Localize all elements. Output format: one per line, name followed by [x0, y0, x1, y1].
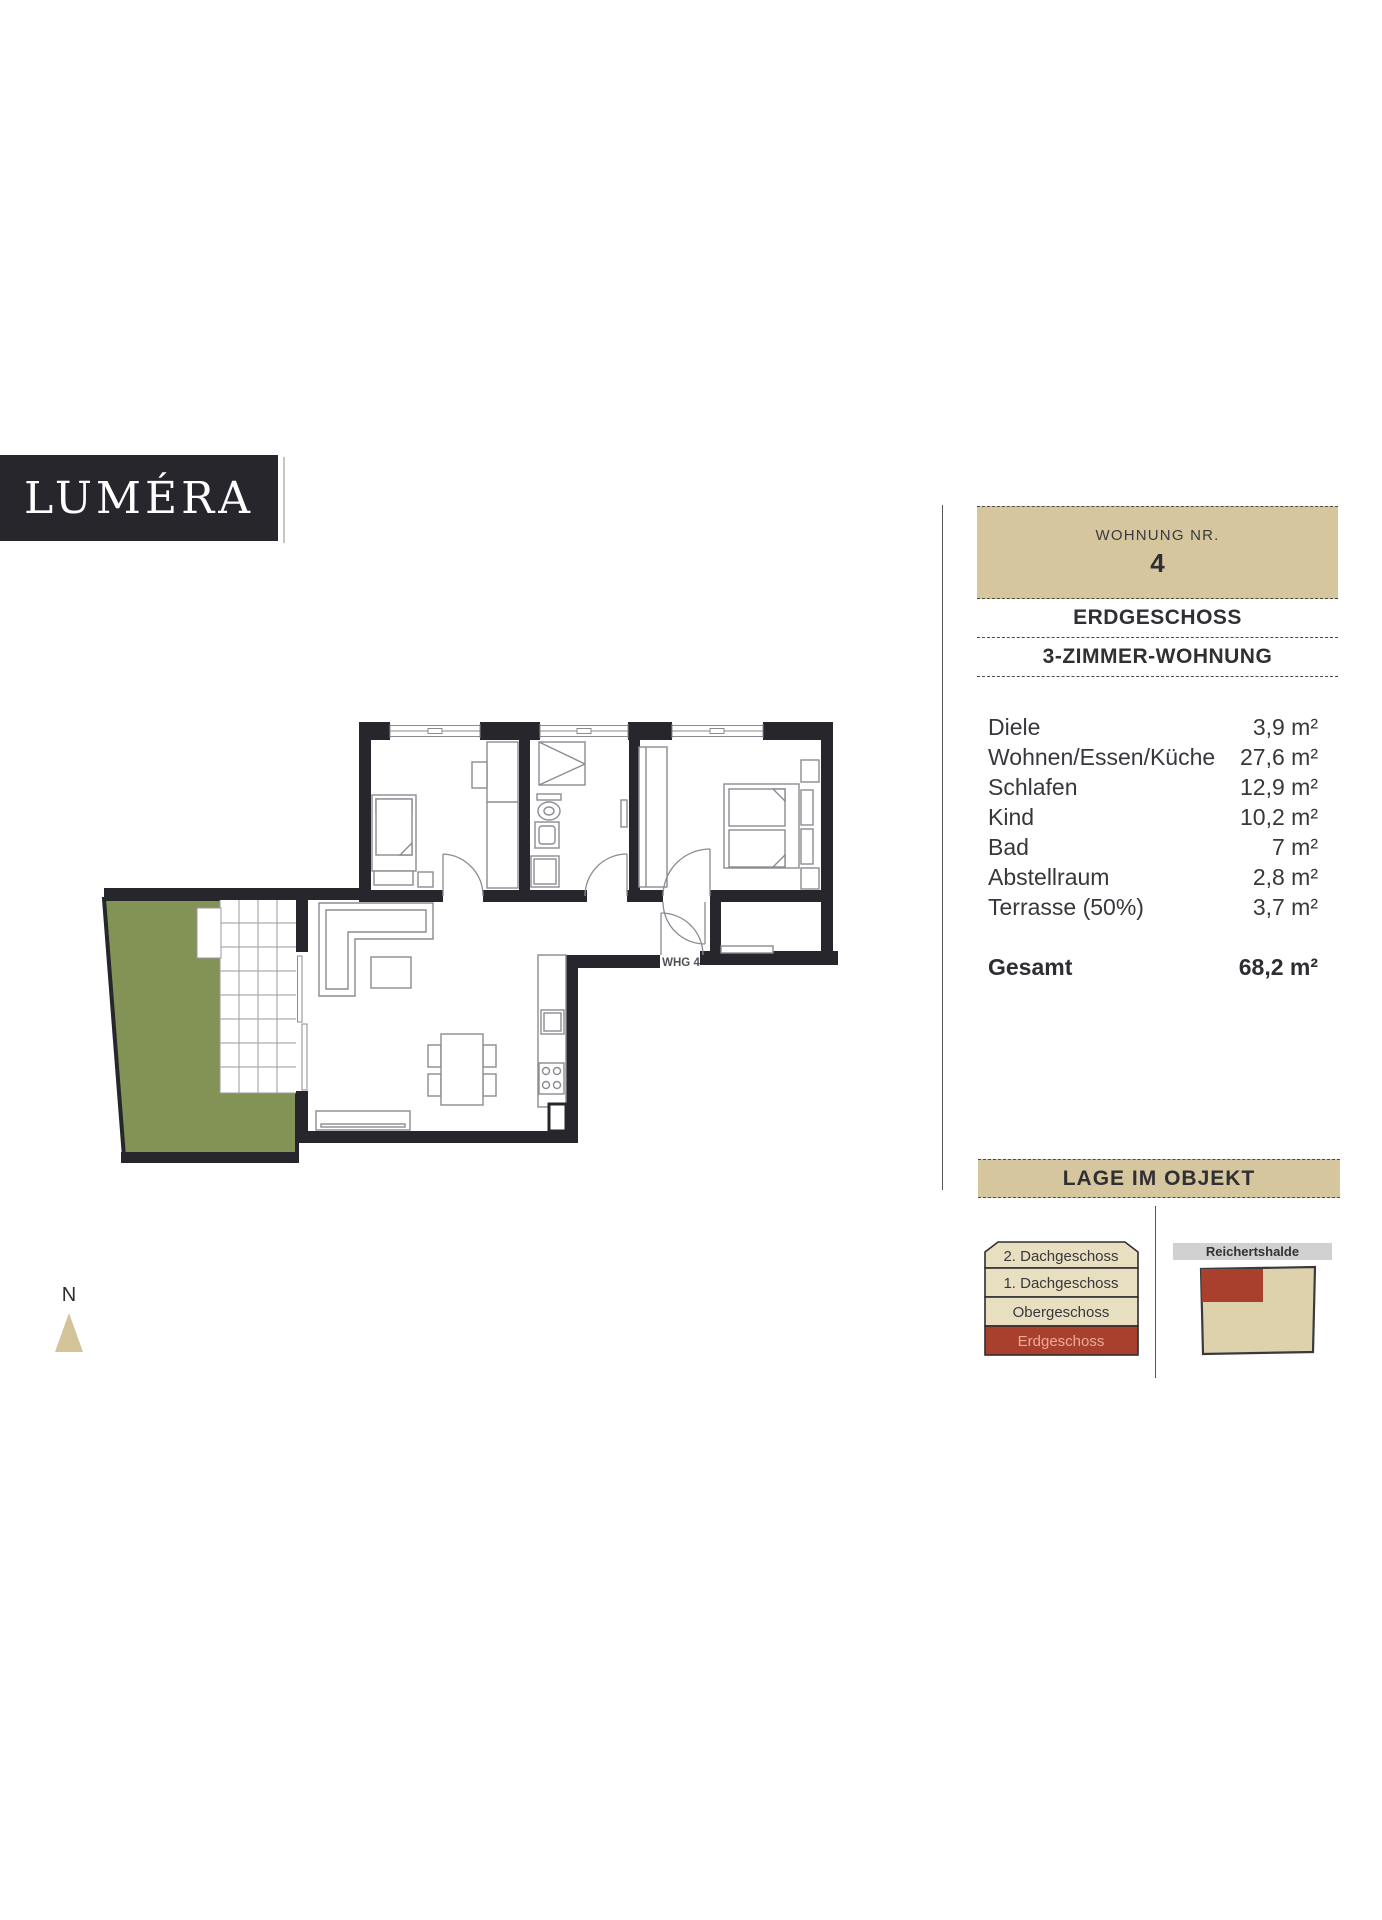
garden-edge-wall — [121, 1152, 299, 1163]
room-area: 2,8 m² — [1253, 862, 1318, 892]
street-label: Reichertshalde — [1173, 1243, 1332, 1260]
door-bad — [585, 854, 627, 896]
room-row: Kind 10,2 m² — [988, 802, 1318, 832]
terrace-sliding-door — [296, 952, 308, 1091]
unit-number: 4 — [1150, 548, 1164, 579]
wall-kind-bad — [519, 740, 530, 902]
garden-area — [104, 899, 299, 1163]
bath-toilet — [537, 794, 561, 820]
north-arrow-icon — [55, 1313, 83, 1352]
floor-title: ERDGESCHOSS — [977, 599, 1338, 638]
terrace-bench — [197, 908, 221, 958]
room-row: Terrasse (50%) 3,7 m² — [988, 892, 1318, 922]
room-area: 10,2 m² — [1240, 802, 1318, 832]
room-list: Diele 3,9 m² Wohnen/Essen/Küche 27,6 m² … — [988, 712, 1318, 982]
wall-kitchen — [566, 955, 578, 1143]
bath-washer — [531, 856, 559, 887]
entrance-doormat — [721, 946, 773, 953]
door-kind — [443, 854, 483, 896]
wall-over-garden — [104, 888, 359, 900]
window-kind — [390, 722, 480, 740]
room-row: Abstellraum 2,8 m² — [988, 862, 1318, 892]
nightstand — [801, 868, 819, 889]
site-unit-highlight — [1201, 1269, 1263, 1302]
room-label: Kind — [988, 802, 1034, 832]
wall-notch — [549, 1104, 566, 1131]
schlafen-radiator — [621, 800, 627, 827]
room-label: Bad — [988, 832, 1029, 862]
coffee-table — [371, 957, 411, 988]
bath-sink — [535, 822, 559, 848]
door-schlafen — [663, 849, 710, 896]
windows — [390, 722, 763, 740]
window-bad — [540, 722, 628, 740]
floor-stack-label: 1. Dachgeschoss — [1003, 1275, 1118, 1292]
bath-shower — [539, 742, 585, 785]
kind-wardrobe — [472, 742, 518, 888]
room-row: Bad 7 m² — [988, 832, 1318, 862]
page: LUMÉRA WOHNUNG NR. 4 ERDGESCHOSS 3-ZIMME… — [0, 0, 1382, 1920]
total-label: Gesamt — [988, 952, 1072, 982]
kind-desk-chair — [472, 762, 487, 788]
column-divider — [942, 505, 943, 1190]
room-row: Diele 3,9 m² — [988, 712, 1318, 742]
schlafen-double-bed — [724, 760, 819, 889]
wall-left-upper — [359, 722, 371, 902]
north-compass: N — [50, 1282, 88, 1356]
unit-header: WOHNUNG NR. 4 — [977, 506, 1338, 599]
floor-stack-label: 2. Dachgeschoss — [1003, 1248, 1118, 1265]
floor-plan: WHG 4 — [90, 700, 860, 1180]
apartment-label: WHG 4 — [662, 957, 700, 969]
room-area: 7 m² — [1272, 832, 1318, 862]
kind-stool — [418, 872, 433, 887]
lage-banner: LAGE IM OBJEKT — [978, 1159, 1340, 1198]
room-label: Schlafen — [988, 772, 1078, 802]
wall-hall-bottom — [571, 955, 660, 968]
room-area: 12,9 m² — [1240, 772, 1318, 802]
room-label: Terrasse (50%) — [988, 892, 1144, 922]
floor-stack-label-highlighted: Erdgeschoss — [1018, 1333, 1105, 1350]
schlafen-wardrobe — [639, 747, 667, 887]
door-entrance — [661, 902, 705, 955]
north-label: N — [62, 1284, 76, 1306]
kind-bed — [372, 795, 416, 885]
brand-logo-text: LUMÉRA — [24, 473, 254, 524]
floor-stack-diagram: 2. Dachgeschoss 1. Dachgeschoss Obergesc… — [983, 1240, 1140, 1357]
room-row: Schlafen 12,9 m² — [988, 772, 1318, 802]
room-label: Diele — [988, 712, 1040, 742]
site-plan — [1197, 1264, 1319, 1358]
unit-label: WOHNUNG NR. — [1095, 527, 1219, 544]
wall-right — [821, 722, 833, 965]
total-area: 68,2 m² — [1239, 952, 1318, 982]
room-label: Wohnen/Essen/Küche — [988, 742, 1215, 772]
total-row: Gesamt 68,2 m² — [988, 952, 1318, 982]
dining-table — [441, 1034, 483, 1105]
kitchen-counter — [538, 955, 566, 1107]
kitchen-stove — [539, 1063, 564, 1094]
logo-rule — [283, 457, 285, 543]
lage-divider — [1155, 1206, 1156, 1378]
brand-logo: LUMÉRA — [0, 455, 278, 541]
room-label: Abstellraum — [988, 862, 1109, 892]
dining-set — [428, 1034, 496, 1105]
room-row: Wohnen/Essen/Küche 27,6 m² — [988, 742, 1318, 772]
window-schlafen — [672, 722, 763, 740]
floor-stack-label: Obergeschoss — [1013, 1304, 1110, 1321]
room-area: 27,6 m² — [1240, 742, 1318, 772]
wall-bottom — [296, 1131, 578, 1143]
room-area: 3,7 m² — [1253, 892, 1318, 922]
type-title: 3-ZIMMER-WOHNUNG — [977, 638, 1338, 677]
room-area: 3,9 m² — [1253, 712, 1318, 742]
nightstand — [801, 760, 819, 782]
living-sideboard — [316, 1111, 410, 1130]
